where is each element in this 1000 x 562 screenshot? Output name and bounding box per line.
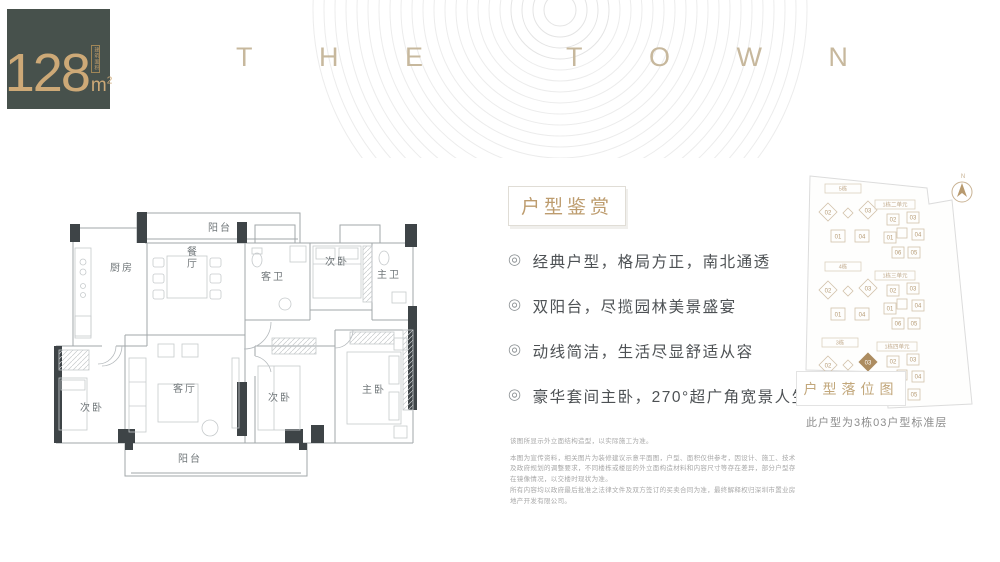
disclaimer-para1: 本图为宣传资料，相关图片为装修建议示意平面图，户型、面积仅供参考，因设计、施工、… [510,454,802,486]
area-badge: 128 建筑面积 m2 [7,9,110,109]
bullet-icon: ◎ [508,340,523,360]
unit-label: 02 [825,364,832,370]
unit-label: 04 [915,304,922,310]
brand-letter: T [566,42,583,73]
features-panel: 户型鉴赏 ◎经典户型，格局方正，南北通透 ◎双阳台，尽揽园林美景盛宴 ◎动线简洁… [508,186,824,430]
rings-svg [300,0,820,158]
ring [533,0,587,37]
room-label-master-bath: 主卫 [377,269,401,281]
unit-label: 06 [895,322,902,328]
cluster-label: 5栋 [839,185,848,193]
unit-label: 05 [911,251,918,257]
brand-letter: T [236,42,253,73]
ring [423,0,697,147]
unit-label: 01 [835,313,842,319]
disclaimer-line1: 该图所显示外立面结构造型，以实际施工为准。 [510,437,802,448]
unit-label: 02 [825,289,832,295]
floorplan-walls [56,213,413,476]
room-label-dining: 餐厅 [185,245,197,270]
feature-text: 经典户型，格局方正，南北通透 [533,250,771,272]
ring [368,0,752,158]
cluster-label: 3栋 [836,339,845,347]
seal-stamp: 建筑面积 [91,45,101,73]
features-list: ◎经典户型，格局方正，南北通透 ◎双阳台，尽揽园林美景盛宴 ◎动线简洁，生活尽显… [508,250,824,407]
unit-label: 03 [865,209,872,215]
area-number: 128 [5,52,89,95]
ring [544,0,576,26]
ring [412,0,708,158]
unit-label-highlighted: 03 [865,361,872,367]
feature-item: ◎豪华套间主卧，270°超广角宽景人生 [508,385,824,407]
room-label-bedroom-top: 次卧 [325,255,349,268]
features-title: 户型鉴赏 [508,186,626,226]
room-label-bedroom-left: 次卧 [80,401,104,414]
compass-icon: N [952,174,972,202]
ring [335,0,785,158]
cluster-label: 1栋四单元 [884,343,910,351]
unit-label: 04 [915,233,922,239]
unit-label: 05 [911,322,918,328]
disclaimer-block: 该图所显示外立面结构造型，以实际施工为准。 本图为宣传资料，相关图片为装修建议示… [510,437,802,513]
ring [313,0,807,158]
unit-label: 01 [835,235,842,241]
unit-label: 02 [890,218,897,224]
room-label-bedroom-mid: 次卧 [268,391,292,404]
unit-label: 02 [825,211,832,217]
bullet-icon: ◎ [508,250,523,270]
brand-letter: N [828,42,848,73]
unit-label: 03 [910,216,917,222]
ring [390,0,730,158]
brand-wordmark: T H E T O W N [236,42,848,73]
brand-letter-space [489,42,499,73]
ring [522,0,598,48]
unit-label: 04 [859,235,866,241]
area-side: 建筑面积 m2 [91,45,112,95]
unit-label: 06 [895,251,902,257]
feature-item: ◎经典户型，格局方正，南北通透 [508,250,824,272]
room-label-balcony-top: 阳台 [208,221,232,234]
unit-label: 04 [915,375,922,381]
floorplan-structural-walls [54,212,417,450]
ring [357,0,763,158]
unit-label: 03 [910,358,917,364]
unit-label: 01 [887,307,894,313]
ring [324,0,796,158]
brand-letter: O [649,42,670,73]
ring [346,0,774,158]
compass-north-label: N [961,174,965,180]
flyer-page: 128 建筑面积 m2 T H E T O W N [0,0,1000,562]
siteplan-caption: 此户型为3栋03户型标准层 [806,414,947,430]
bullet-icon: ◎ [508,385,523,405]
cluster-label: 4栋 [839,263,848,271]
disclaimer-para2: 所有内容均以政府最后批准之法律文件及双方签订的买卖合同为准，最终解释权归深圳市置… [510,486,802,507]
unit-label: 02 [890,289,897,295]
room-label-kitchen: 厨房 [110,261,134,274]
floorplan-furniture [59,246,413,438]
cluster-label: 1栋二单元 [882,201,908,209]
concentric-rings-decoration [300,0,820,158]
room-label-balcony-bottom: 阳台 [178,452,202,465]
unit-label: 04 [859,313,866,319]
siteplan-legend-title: 户型落位图 [796,371,906,406]
feature-text: 豪华套间主卧，270°超广角宽景人生 [533,385,809,407]
feature-item: ◎动线简洁，生活尽显舒适从容 [508,340,824,362]
feature-text: 双阳台，尽揽园林美景盛宴 [533,295,737,317]
feature-item: ◎双阳台，尽揽园林美景盛宴 [508,295,824,317]
ring [401,0,719,158]
room-label-master-bedroom: 主卧 [362,383,386,396]
room-label-living: 客厅 [173,382,197,395]
ring [379,0,741,158]
area-unit: m2 [91,76,112,95]
room-label-guest-bath: 客卫 [261,270,285,283]
cluster-label: 1栋三单元 [882,272,908,280]
floorplan-diagram: 阳台 厨房 餐厅 客卫 次卧 主卫 次卧 客厅 次卧 主卧 阳台 [42,196,472,486]
brand-letter: W [736,42,761,73]
unit-label: 03 [865,287,872,293]
feature-text: 动线简洁，生活尽显舒适从容 [533,340,754,362]
unit-label: 02 [890,360,897,366]
unit-label: 03 [910,287,917,293]
unit-m: m [91,75,107,96]
unit-exponent: 2 [107,76,113,87]
unit-label: 01 [887,236,894,242]
brand-letter: H [319,42,339,73]
bullet-icon: ◎ [508,295,523,315]
brand-letter: E [405,42,423,73]
unit-label: 05 [911,393,918,399]
